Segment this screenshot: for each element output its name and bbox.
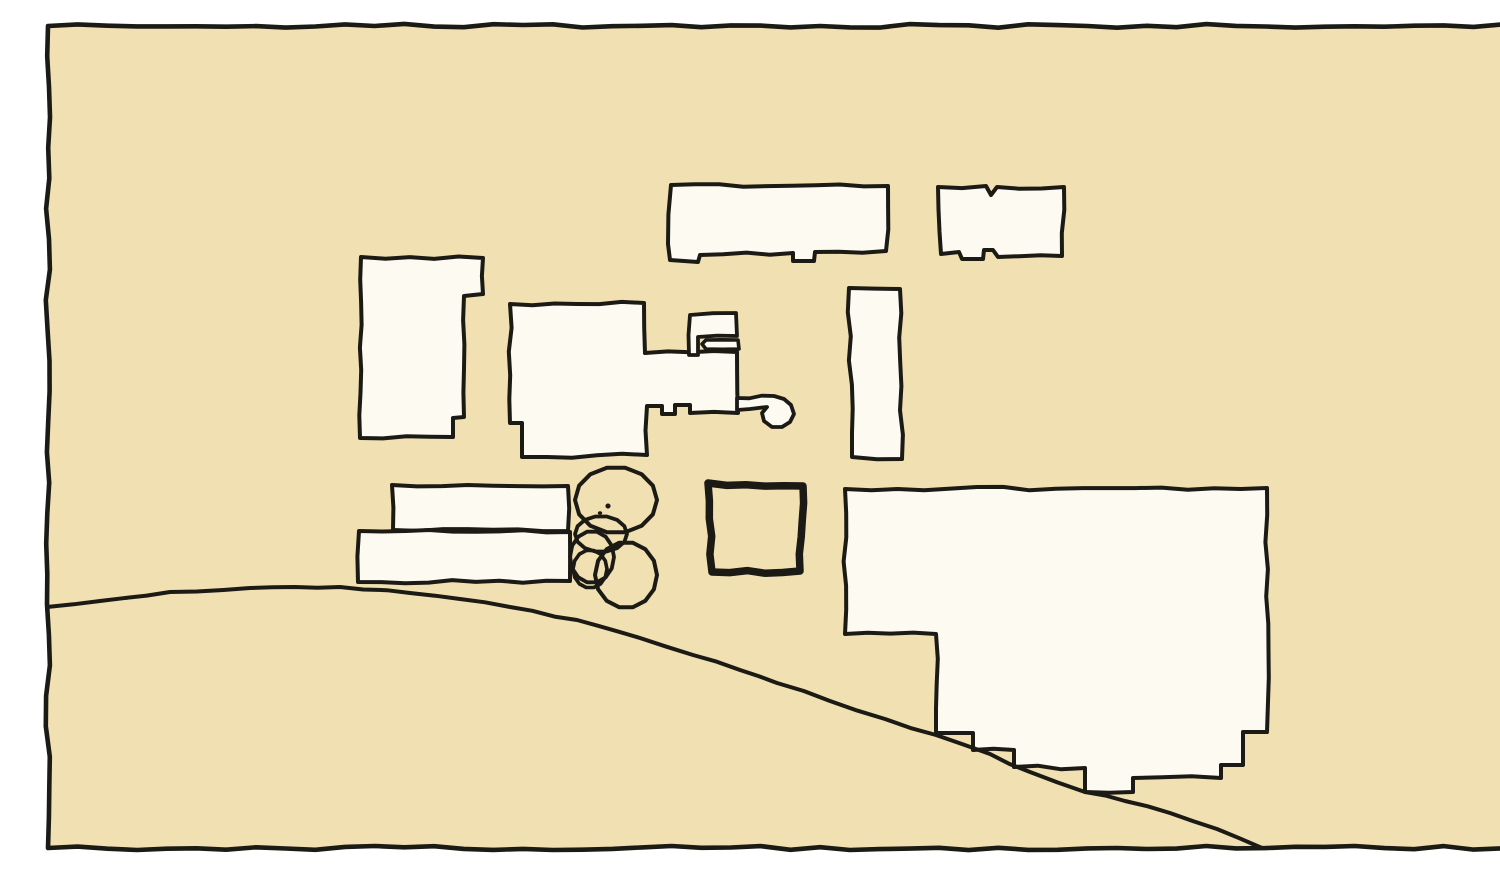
terrace-step-upper — [392, 485, 569, 531]
building-top-long — [668, 184, 888, 262]
site-plan-sketch — [40, 16, 1500, 860]
building-vertical-bar — [848, 288, 903, 459]
building-top-right — [938, 186, 1064, 259]
border-frame — [46, 24, 1500, 850]
building-left-tall — [359, 257, 483, 439]
building-central-wing-bar — [702, 340, 739, 350]
hand-drawn-site-map — [40, 16, 1500, 860]
terrace-step-lower — [357, 530, 570, 583]
